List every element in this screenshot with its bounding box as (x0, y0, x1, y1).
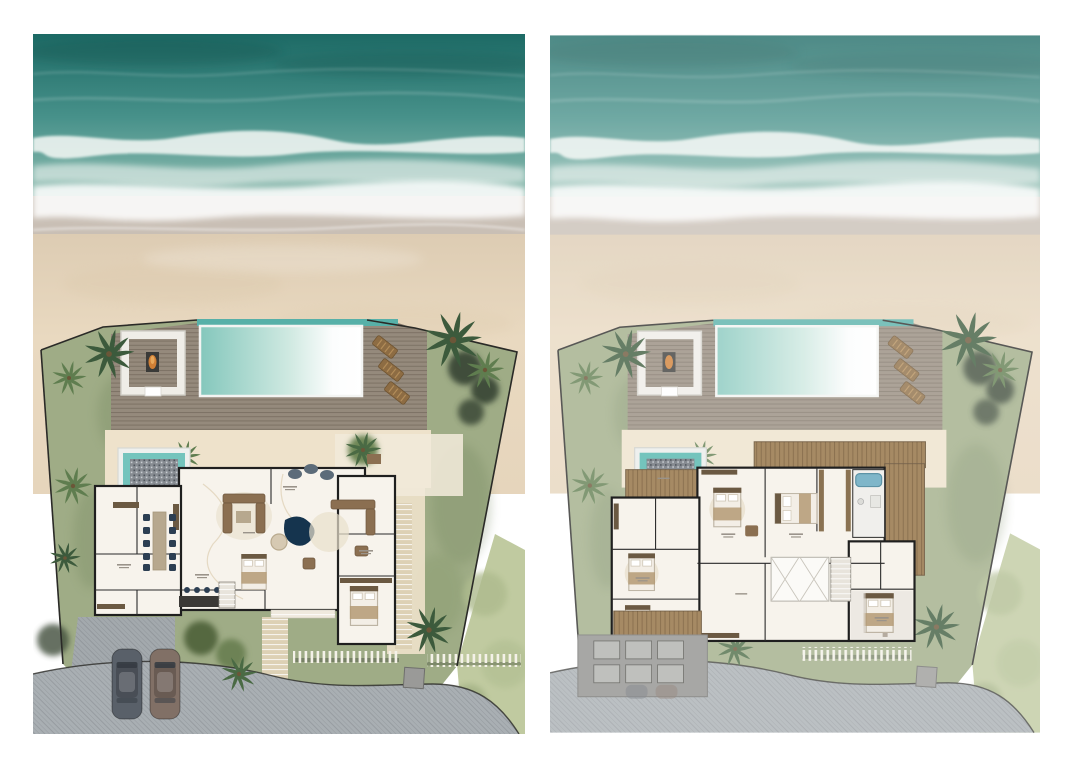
two-panel-floor-plan-sheet (0, 0, 1072, 768)
bath-tub (856, 474, 882, 487)
ground-floor-plan-panel (33, 34, 525, 734)
master-bed (775, 494, 817, 524)
staircase (831, 557, 851, 601)
bedroom-bed (713, 488, 741, 527)
car-under-roof (626, 685, 648, 699)
bathroom (853, 470, 885, 538)
walk-in-closet (819, 470, 851, 532)
stair-void (771, 557, 829, 601)
bedroom-bed (628, 553, 655, 590)
car (150, 649, 180, 719)
staircase (219, 582, 235, 608)
bedroom-bed (241, 554, 266, 589)
car (112, 649, 142, 719)
patio-table (367, 454, 381, 464)
parked-cars (112, 649, 180, 719)
car-under-roof (656, 685, 678, 699)
armchair (745, 525, 758, 536)
garage-roof (578, 611, 707, 699)
upper-floor-plan-panel (550, 34, 1042, 734)
ground-floor-villa-plan (33, 34, 525, 734)
bedroom-bed (350, 586, 378, 625)
upper-floor-villa-plan (550, 34, 1040, 734)
